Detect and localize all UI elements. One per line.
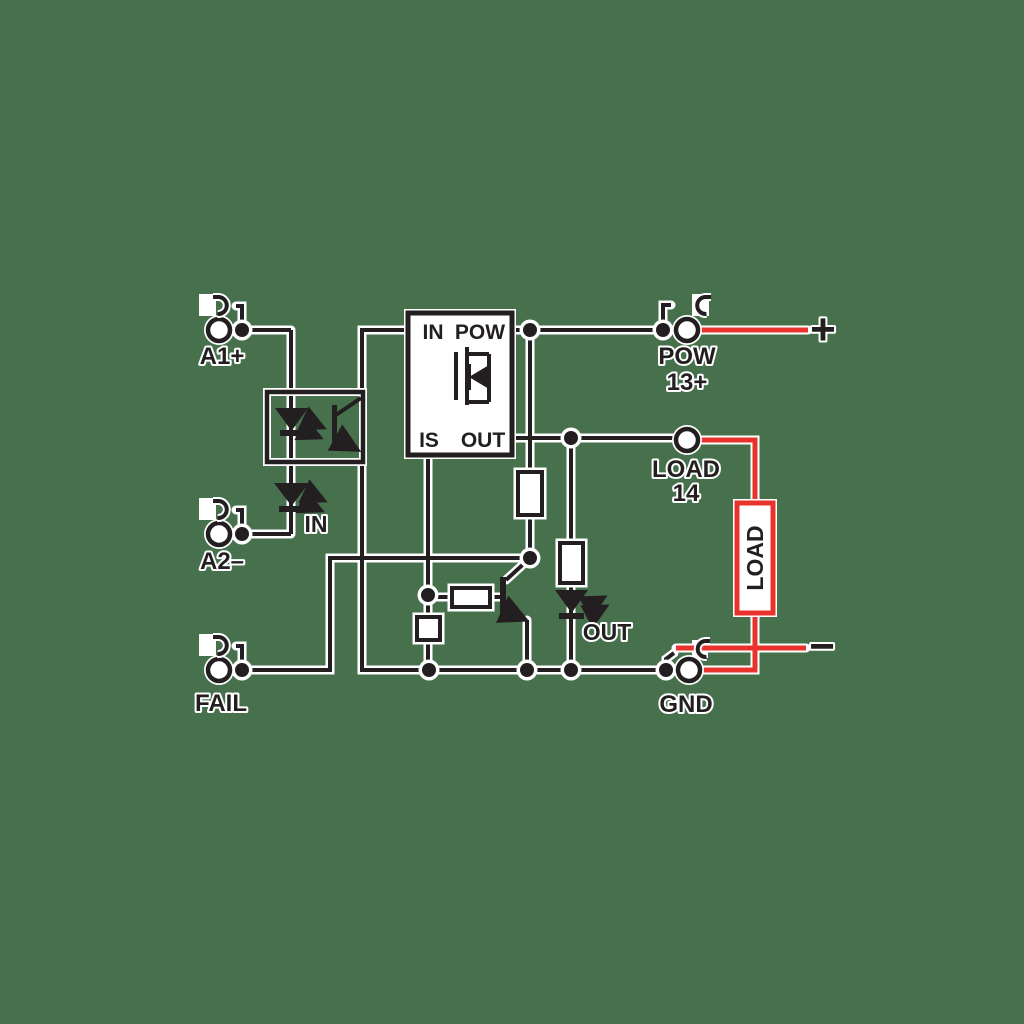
plus-symbol: +: [810, 305, 836, 354]
resistor-icon: [518, 472, 542, 515]
terminal-pin-load: 14: [673, 480, 700, 507]
background: [0, 0, 1024, 1024]
output-led-label: OUT: [583, 619, 632, 645]
schematic-canvas: IN IN POW IS OUT OUT: [0, 0, 1024, 1024]
junction-dot: [517, 660, 538, 681]
terminal-ring-icon: [204, 315, 234, 345]
terminal-label-gnd: GND: [659, 691, 712, 718]
input-led-label: IN: [305, 511, 328, 537]
junction-dot: [419, 660, 440, 681]
driver-block: IN POW IS OUT: [408, 313, 512, 455]
terminal-label-load: LOAD: [652, 456, 720, 483]
junction-dot: [520, 548, 541, 569]
driver-pin-out: OUT: [461, 429, 506, 452]
load-box-label: LOAD: [742, 525, 768, 590]
terminal-label-a2: A2–: [200, 548, 244, 575]
junction-dot: [656, 660, 677, 681]
resistor-icon: [452, 588, 490, 607]
junction-dot: [520, 320, 541, 341]
junction-dot: [653, 320, 674, 341]
terminal-ring-icon: [204, 655, 234, 685]
driver-pin-pow: POW: [455, 321, 505, 344]
terminal-label-fail: FAIL: [195, 690, 247, 717]
circuit-diagram: IN IN POW IS OUT OUT: [0, 0, 1024, 1024]
terminal-ring-icon: [674, 655, 704, 685]
resistor-icon: [417, 617, 440, 640]
junction-dot: [232, 524, 253, 545]
driver-pin-is: IS: [419, 429, 439, 452]
junction-dot: [232, 320, 253, 341]
driver-pin-in: IN: [423, 321, 444, 344]
resistor-icon: [560, 543, 583, 583]
terminal-ring-icon: [672, 425, 702, 455]
terminal-label-pow: POW: [658, 343, 716, 370]
minus-symbol: −: [809, 622, 835, 671]
load-block: LOAD: [737, 503, 773, 613]
terminal-pin-pow: 13+: [667, 369, 708, 396]
junction-dot: [232, 660, 253, 681]
terminal-ring-icon: [204, 519, 234, 549]
terminal-ring-icon: [672, 315, 702, 345]
junction-dot: [418, 585, 439, 606]
terminal-label-a1: A1+: [200, 343, 245, 370]
junction-dot: [561, 428, 582, 449]
junction-dot: [561, 660, 582, 681]
